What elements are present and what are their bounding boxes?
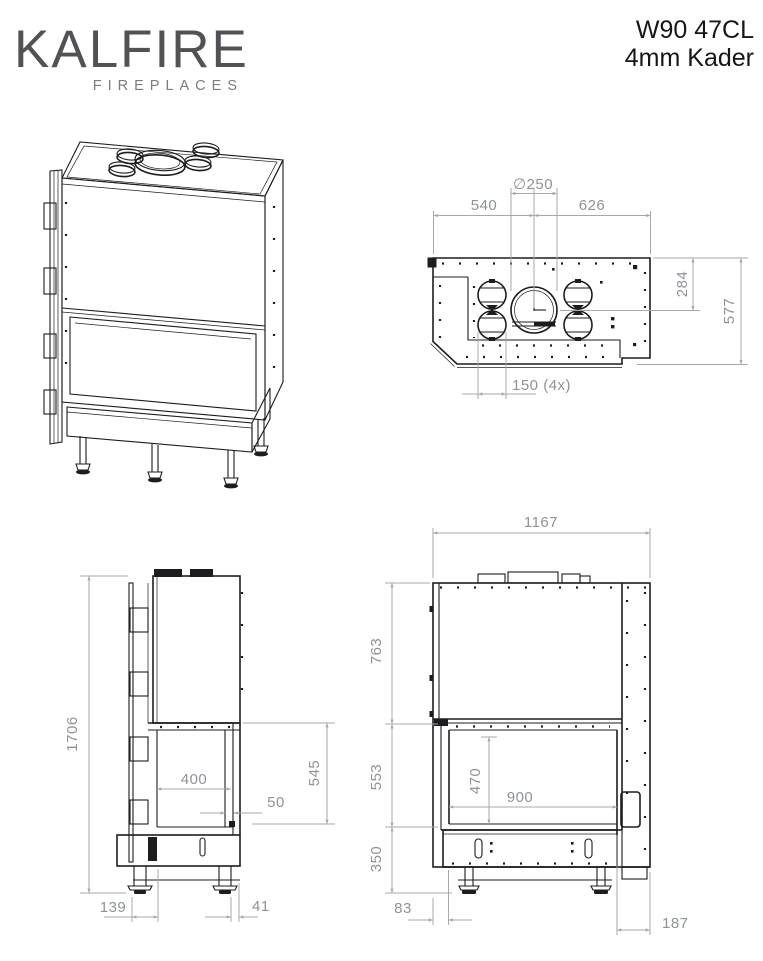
technical-drawing-page: KALFIRE FIREPLACES W90 47CL 4mm Kader — [0, 0, 763, 961]
dim-553: 553 — [368, 764, 385, 791]
dim-83: 83 — [394, 900, 412, 917]
dim-626: 626 — [579, 197, 606, 214]
brand-logo-subtitle: FIREPLACES — [93, 78, 243, 94]
dim-50: 50 — [267, 794, 285, 811]
top-view: ∅250 540 626 284 577 150 (4x) — [428, 176, 749, 399]
dim-41: 41 — [252, 898, 270, 915]
model-title: W90 47CL — [636, 16, 754, 44]
iso-flue-stubs — [109, 142, 220, 178]
dim-350: 350 — [368, 846, 385, 873]
dim-577: 577 — [721, 298, 738, 325]
dim-150-4x: 150 (4x) — [512, 377, 571, 394]
dim-400: 400 — [181, 771, 208, 788]
variant-title: 4mm Kader — [625, 44, 754, 72]
dim-1167: 1167 — [524, 514, 558, 531]
dim-187: 187 — [662, 915, 689, 932]
isometric-view — [44, 142, 283, 489]
dim-540: 540 — [471, 197, 498, 214]
dim-470: 470 — [467, 768, 484, 795]
front-view: 1167 763 553 350 470 900 83 187 — [368, 514, 689, 935]
header: KALFIRE FIREPLACES W90 47CL 4mm Kader — [14, 16, 754, 94]
drawing-canvas: KALFIRE FIREPLACES W90 47CL 4mm Kader — [0, 0, 763, 961]
dim-763: 763 — [368, 638, 385, 665]
dim-284: 284 — [674, 271, 691, 298]
dim-900: 900 — [507, 789, 534, 806]
dim-545: 545 — [306, 760, 323, 787]
dim-139: 139 — [100, 899, 127, 916]
side-view: 1706 400 50 545 139 41 — [64, 569, 335, 922]
iso-feet — [76, 418, 268, 488]
front-view-dimensions: 1167 763 553 350 470 900 83 187 — [368, 514, 689, 935]
brand-logo: KALFIRE — [14, 20, 249, 79]
dim-1706: 1706 — [64, 716, 81, 751]
dim-flue-diameter: ∅250 — [513, 176, 553, 193]
side-view-dimensions: 1706 400 50 545 139 41 — [64, 576, 335, 922]
control-box — [621, 792, 640, 827]
